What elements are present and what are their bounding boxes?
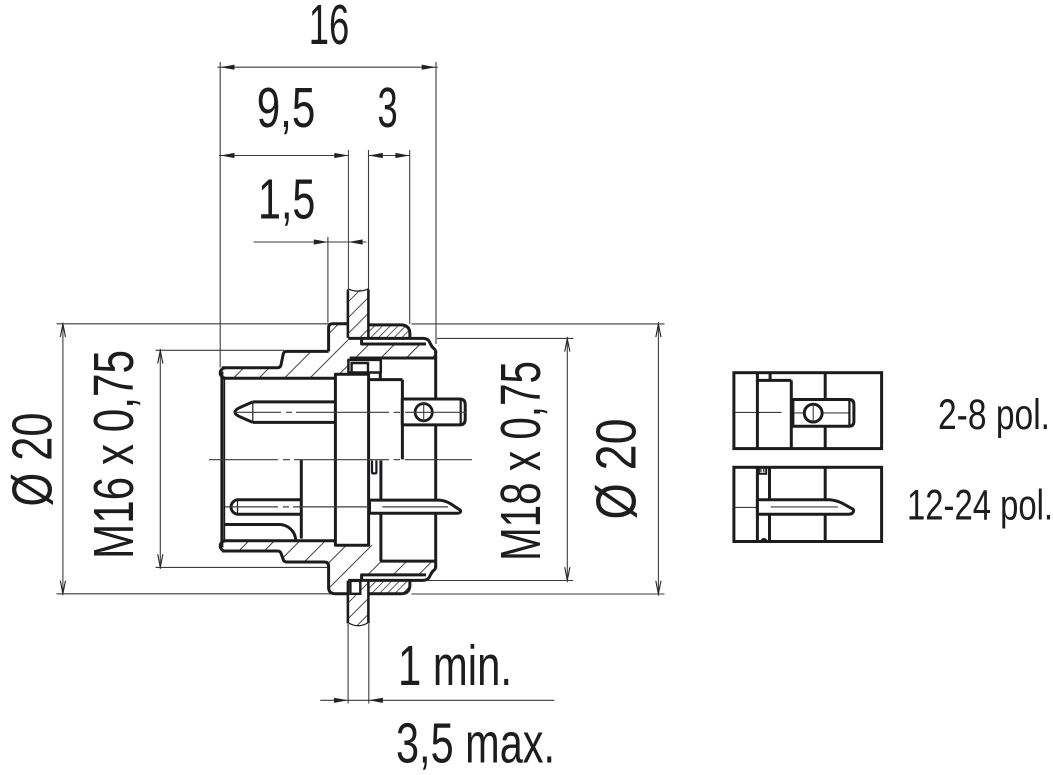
svg-text:16: 16 (309, 0, 350, 57)
svg-text:Ø 20: Ø 20 (1, 413, 65, 507)
svg-text:M18 x 0,75: M18 x 0,75 (489, 361, 553, 561)
svg-text:1 min.: 1 min. (398, 634, 512, 698)
svg-text:12-24 pol.: 12-24 pol. (907, 482, 1053, 530)
svg-text:9,5: 9,5 (257, 76, 316, 140)
svg-text:1,5: 1,5 (258, 168, 315, 232)
svg-text:Ø 20: Ø 20 (585, 419, 649, 520)
svg-text:2-8 pol.: 2-8 pol. (938, 391, 1050, 439)
svg-text:3,5 max.: 3,5 max. (396, 712, 555, 775)
svg-text:M16 x 0,75: M16 x 0,75 (82, 350, 146, 559)
svg-text:3: 3 (378, 76, 398, 140)
